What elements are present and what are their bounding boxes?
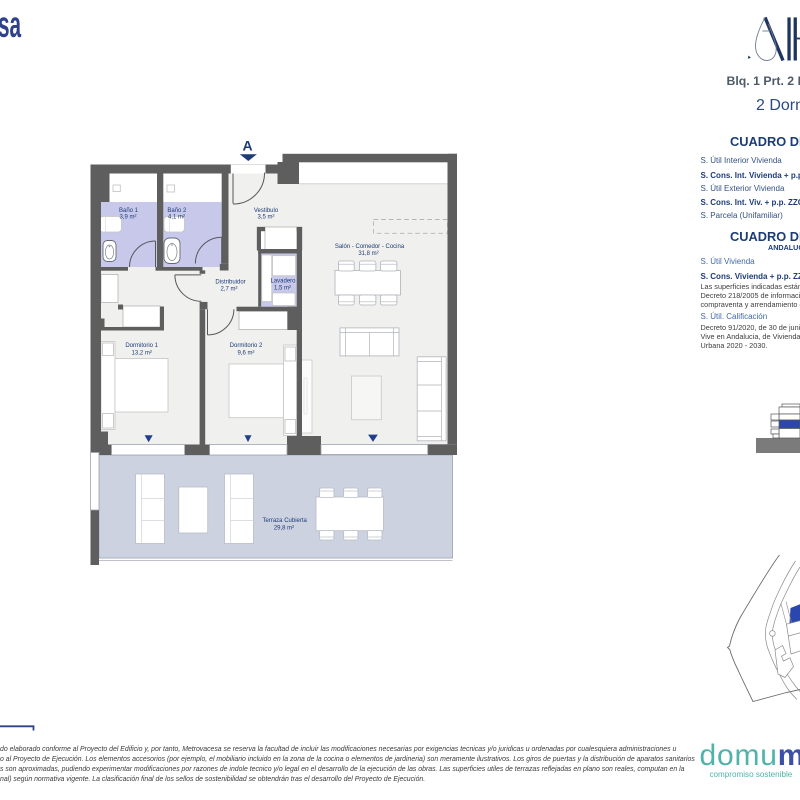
svg-text:Lavadero: Lavadero [270, 279, 296, 285]
svg-text:Distribuidor: Distribuidor [215, 280, 245, 286]
svg-text:9,6 m²: 9,6 m² [237, 351, 254, 357]
svg-text:Baño 1: Baño 1 [119, 208, 139, 214]
svg-text:1,5 m²: 1,5 m² [274, 285, 291, 291]
svg-text:29,8 m²: 29,8 m² [274, 526, 294, 532]
svg-text:3,5 m²: 3,5 m² [257, 215, 274, 221]
svg-text:Vestibulo: Vestibulo [254, 208, 279, 214]
svg-text:Baño 2: Baño 2 [167, 208, 187, 214]
svg-text:4,1 m²: 4,1 m² [168, 215, 185, 221]
svg-text:2,7 m²: 2,7 m² [220, 287, 237, 293]
svg-text:Dormitorio 2: Dormitorio 2 [230, 343, 263, 349]
svg-text:31,8 m²: 31,8 m² [358, 251, 378, 257]
svg-text:Salón - Comedor - Cocina: Salón - Comedor - Cocina [335, 244, 405, 250]
svg-text:Dormitorio 1: Dormitorio 1 [125, 343, 158, 349]
svg-text:13,2 m²: 13,2 m² [132, 351, 152, 357]
svg-text:Terraza Cubierta: Terraza Cubierta [263, 518, 308, 524]
svg-text:A: A [242, 138, 252, 154]
svg-text:3,9 m²: 3,9 m² [119, 215, 136, 221]
